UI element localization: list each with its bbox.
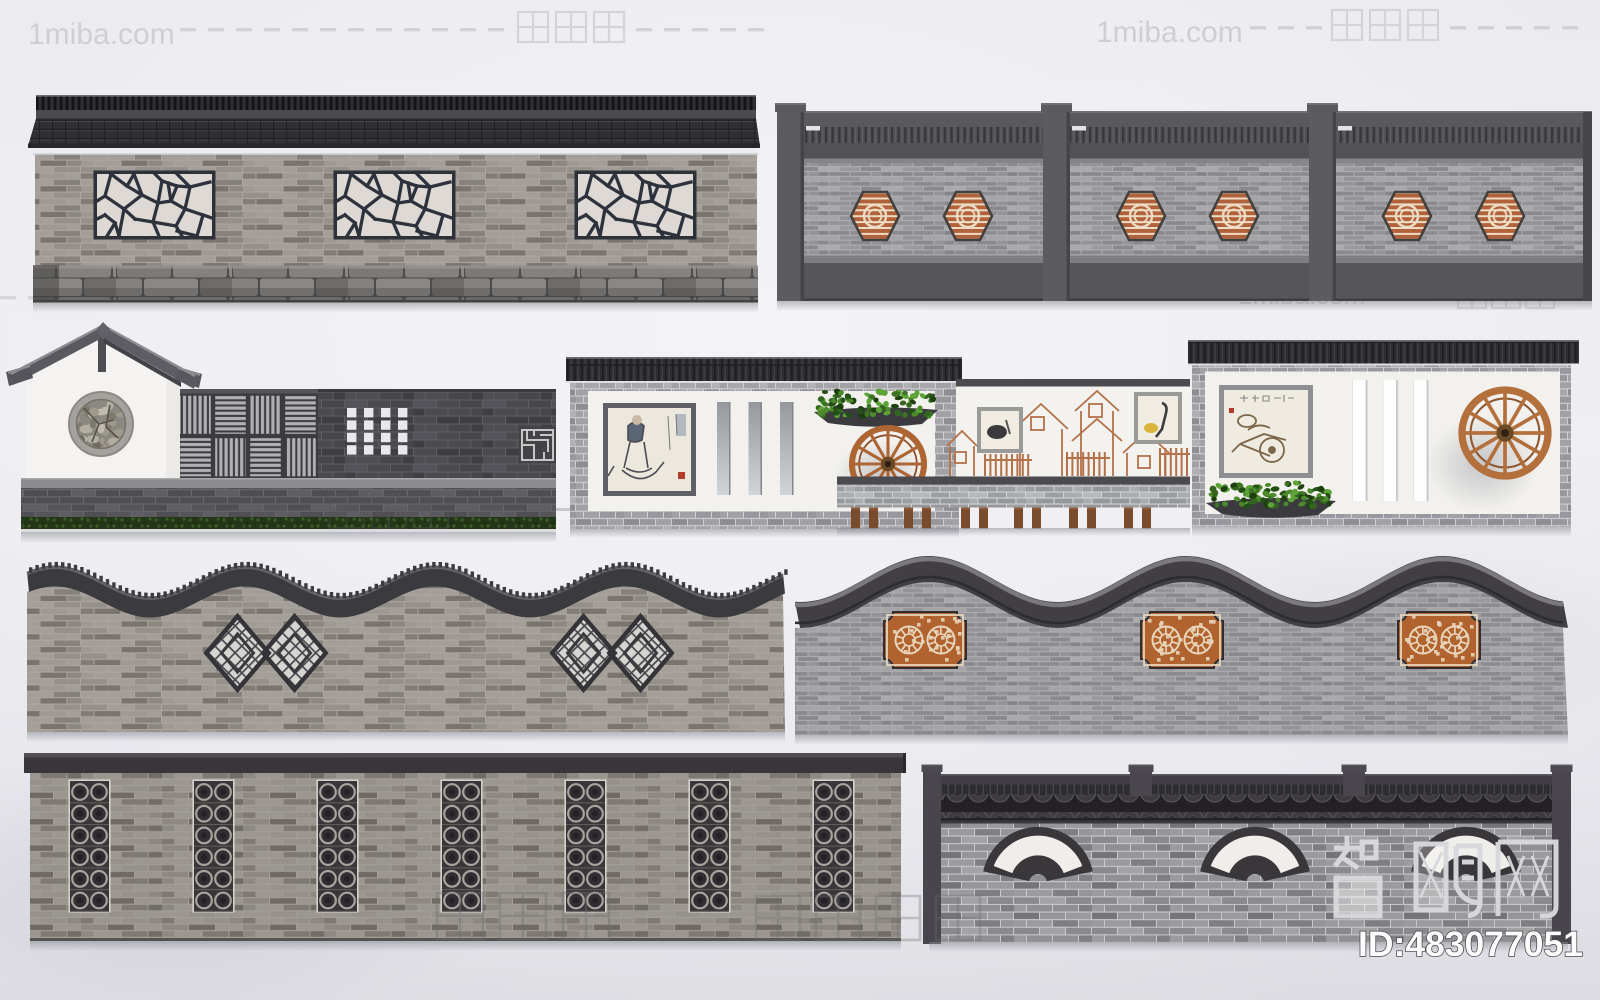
svg-text:1miba.com: 1miba.com (28, 18, 175, 51)
svg-text:ID:483077051: ID:483077051 (1358, 924, 1583, 964)
svg-text:1miba.com: 1miba.com (1096, 16, 1243, 49)
